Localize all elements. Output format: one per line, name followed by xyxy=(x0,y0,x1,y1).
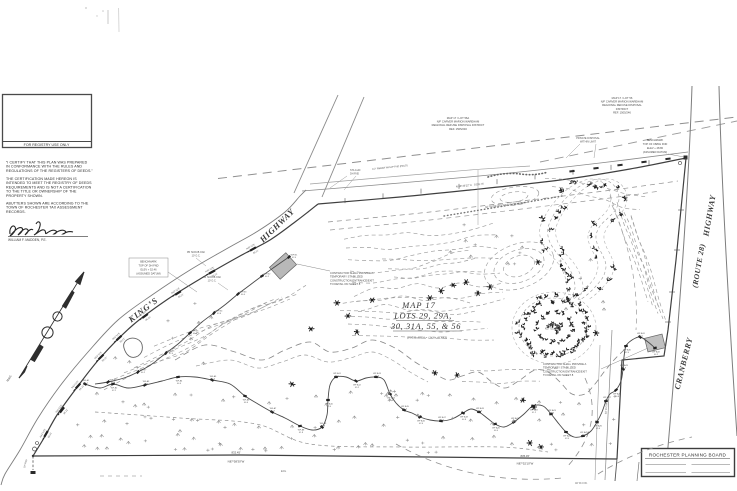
svg-text:STA 0+00: STA 0+00 xyxy=(350,169,361,172)
svg-text:WILLIAM F. MADDEN, P.E.: WILLIAM F. MADDEN, P.E. xyxy=(8,238,47,242)
svg-text:WITHIN LIMIT: WITHIN LIMIT xyxy=(580,140,596,143)
svg-text:TOP OF CB/DH FND: TOP OF CB/DH FND xyxy=(643,142,668,146)
svg-text:FOR REGISTRY USE ONLY: FOR REGISTRY USE ONLY xyxy=(24,143,70,147)
svg-text:ROCHESTER PLANNING BOARD: ROCHESTER PLANNING BOARD xyxy=(649,453,727,458)
svg-text:835.45′: 835.45′ xyxy=(520,454,530,458)
svg-text:DISTRICT: DISTRICT xyxy=(616,107,629,111)
svg-text:832.45′: 832.45′ xyxy=(231,451,241,455)
svg-text:TO DETAIL ON SHEET 8: TO DETAIL ON SHEET 8 xyxy=(543,373,574,377)
svg-text:ELEV + 52.46: ELEV + 52.46 xyxy=(140,268,157,272)
svg-text:TEMPORARY STABILIZED: TEMPORARY STABILIZED xyxy=(330,275,363,279)
svg-text:10′ O.C.: 10′ O.C. xyxy=(192,254,201,257)
svg-text:REF. 1505/246: REF. 1505/246 xyxy=(613,110,631,114)
svg-text:REGIONAL REFUSE DISPOSAL DISTR: REGIONAL REFUSE DISPOSAL DISTRICT xyxy=(432,123,485,127)
svg-text:TOP OF DH FND: TOP OF DH FND xyxy=(138,264,158,268)
svg-text:N87°58′30″W: N87°58′30″W xyxy=(228,460,245,464)
svg-text:(TOTAL AREA = 114.6± ACRES): (TOTAL AREA = 114.6± ACRES) xyxy=(407,336,447,340)
svg-text:REGIONAL REFUSE DISPOSAL: REGIONAL REFUSE DISPOSAL xyxy=(602,103,642,107)
svg-text:BENCHMARK: BENCHMARK xyxy=(140,260,157,264)
svg-text:(ASSUMED DATUM): (ASSUMED DATUM) xyxy=(136,272,160,276)
svg-text:EOL: EOL xyxy=(281,469,287,473)
svg-text:ELEV + 48.80: ELEV + 48.80 xyxy=(647,146,664,150)
svg-text:DH FND: DH FND xyxy=(350,173,359,176)
svg-text:TO DETAIL ON SHEET 8: TO DETAIL ON SHEET 8 xyxy=(330,282,361,286)
svg-text:REF. 1505/246: REF. 1505/246 xyxy=(449,127,467,131)
svg-text:N/F CARVER MARION WAREHAM: N/F CARVER MARION WAREHAM xyxy=(601,100,644,104)
svg-text:(ASSUMED DATUM): (ASSUMED DATUM) xyxy=(643,150,667,154)
svg-text:RECORDS.: RECORDS. xyxy=(6,210,26,214)
svg-text:PROPERTY SHOWN.: PROPERTY SHOWN. xyxy=(6,194,43,198)
svg-text:MAP 17: MAP 17 xyxy=(401,301,436,310)
svg-text:BENCHMARK: BENCHMARK xyxy=(647,138,664,142)
svg-text:30, 31A, 55, & 56: 30, 31A, 55, & 56 xyxy=(390,322,461,331)
svg-text:10′ O.C.: 10′ O.C. xyxy=(208,279,217,282)
svg-text:MAP 17 / LOT 56: MAP 17 / LOT 56 xyxy=(612,96,633,100)
svg-text:REGULATIONS OF THE REGISTERS O: REGULATIONS OF THE REGISTERS OF DEEDS.” xyxy=(6,169,94,173)
svg-text:40′ R.O.W.: 40′ R.O.W. xyxy=(575,481,588,485)
svg-text:KETTLE HOLE: KETTLE HOLE xyxy=(545,327,562,330)
svg-text:MAP 17 / LOT 56A: MAP 17 / LOT 56A xyxy=(447,116,470,120)
svg-text:N87°52′10″W: N87°52′10″W xyxy=(517,462,534,466)
svg-text:N/F CARVER MARION WAREHAM: N/F CARVER MARION WAREHAM xyxy=(437,120,480,124)
